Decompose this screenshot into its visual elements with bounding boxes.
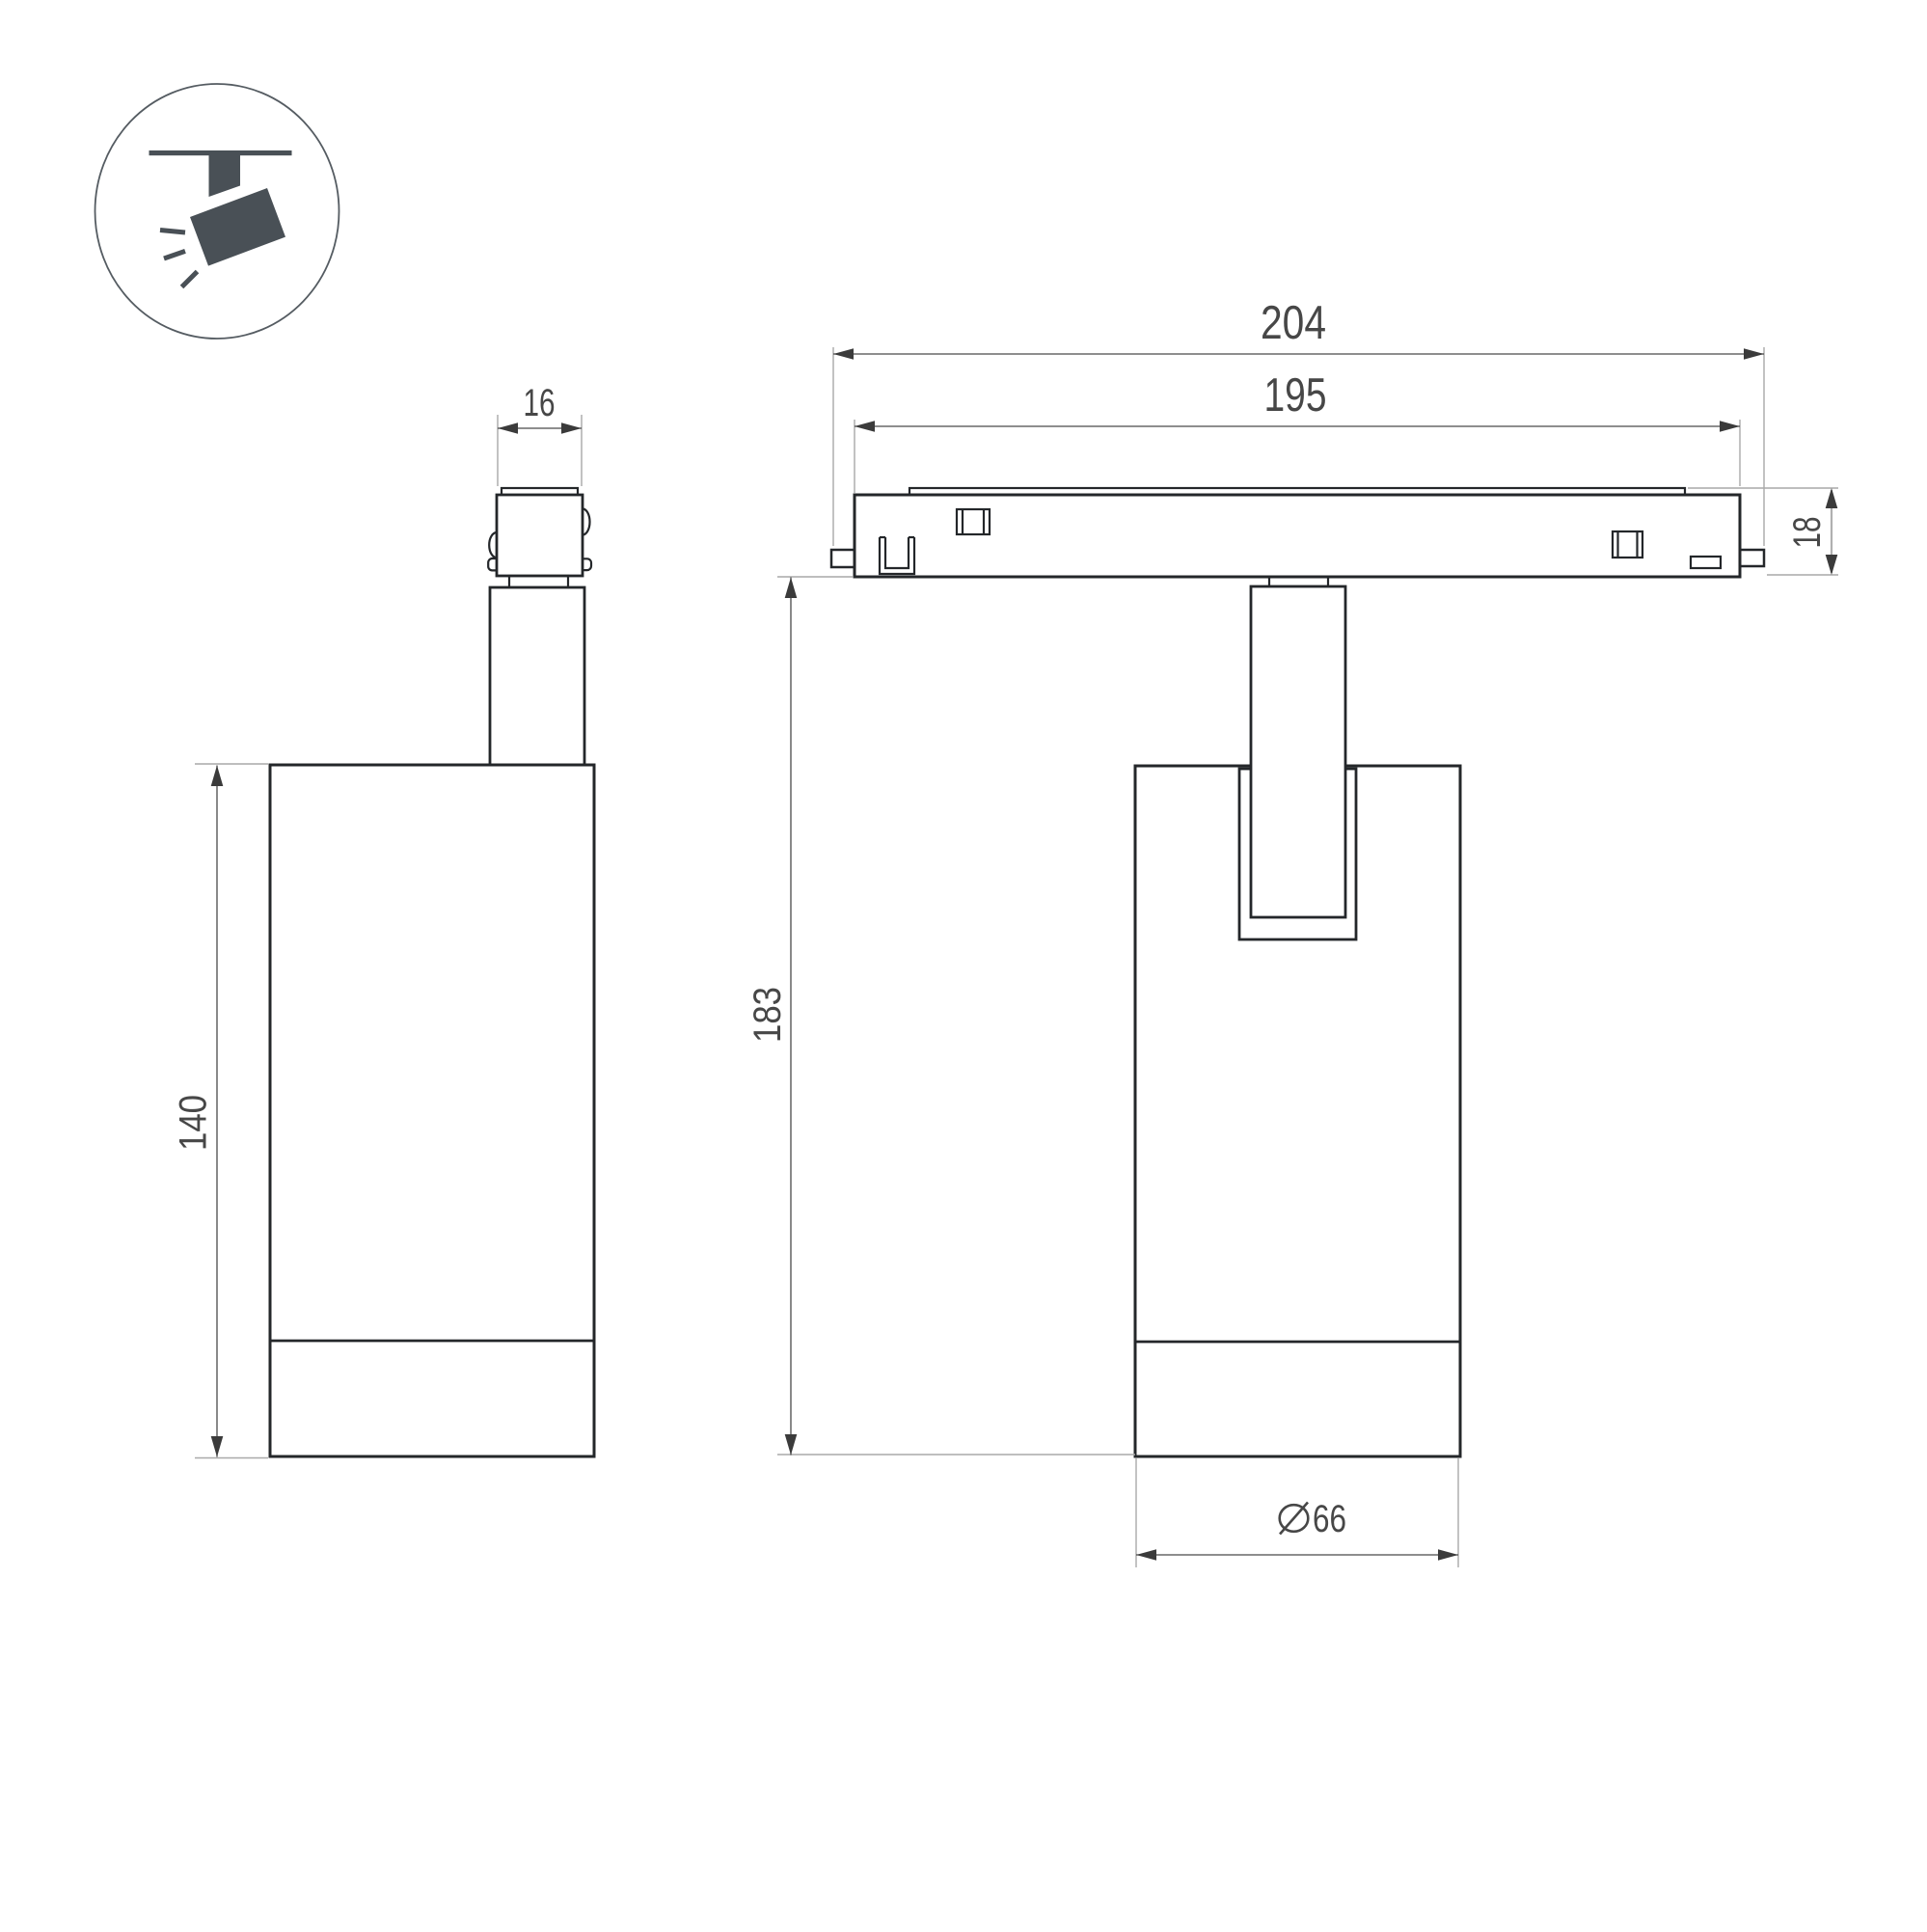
svg-text:66: 66 <box>1313 1498 1346 1540</box>
svg-text:16: 16 <box>524 382 556 424</box>
svg-text:204: 204 <box>1261 297 1326 349</box>
svg-text:18: 18 <box>1786 517 1829 549</box>
svg-text:195: 195 <box>1264 369 1327 422</box>
svg-text:140: 140 <box>173 1095 215 1151</box>
svg-text:183: 183 <box>746 987 789 1043</box>
